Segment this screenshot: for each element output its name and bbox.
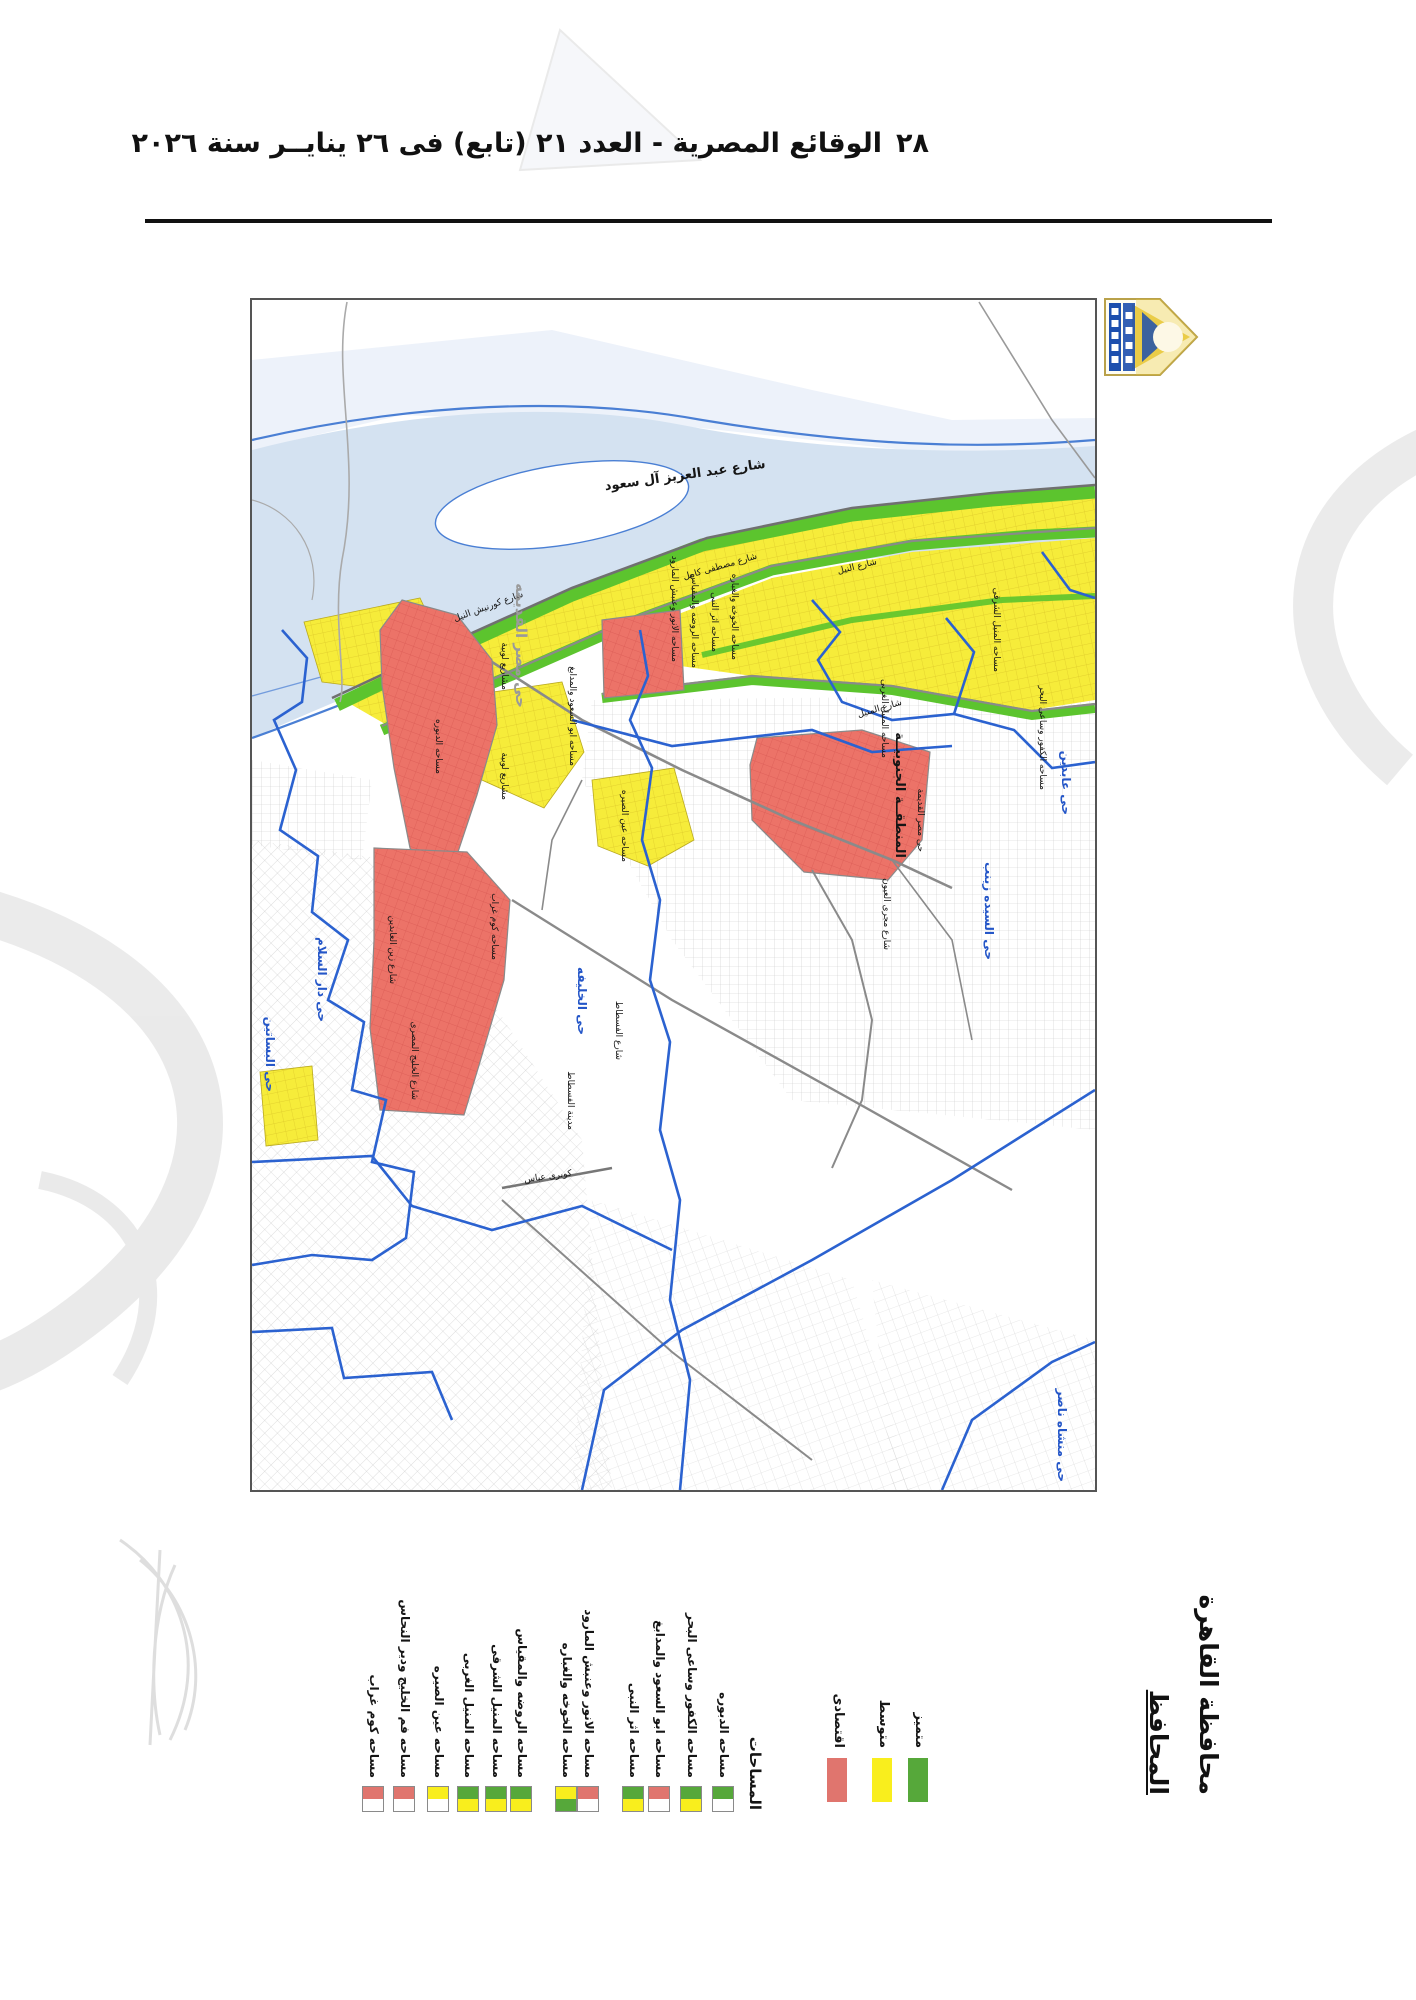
legend-category-premium-label: متميز	[911, 1638, 926, 1748]
area-label-manial-west: مساحه المنيل الغربى	[873, 558, 888, 758]
street-label-magra-eloyoun: شارع مجرى العيون	[875, 750, 890, 950]
legend-entry-label: مساحه عين الصيره	[430, 1528, 445, 1778]
legend-entry-swatch	[393, 1786, 415, 1812]
district-label-khalifa: حى الخليفه	[573, 835, 588, 1035]
legend-entry-swatch	[555, 1786, 577, 1812]
legend-category-economic-swatch	[827, 1758, 847, 1802]
legend-category-medium-swatch	[872, 1758, 892, 1802]
district-label-basatin: حى البساتين	[261, 892, 276, 1092]
area-label-dabbora: مساحه الدبوره	[427, 574, 442, 774]
legend-entry-label: مساحه المنيل الشرقى	[488, 1528, 503, 1778]
district-label-abdeen: حى عابدين	[1057, 615, 1072, 815]
city-map: شارع عبد العزيز آل سعود شارع النيل شارع …	[250, 298, 1097, 1492]
legend-entry-label: مساحه الكفور وساعى البحر	[683, 1528, 698, 1778]
district-label-misr-elqadima-gray: حى مصر القديمه	[513, 508, 528, 708]
legend-entry-swatch	[485, 1786, 507, 1812]
legend-entry-label: مساحه الخوخه والغباره	[558, 1528, 573, 1778]
legend-entry-label: مساحه الدبوره	[715, 1528, 730, 1778]
page-number: ٢٨	[896, 128, 929, 159]
gazette-page: { "page": { "number": "٢٨", "header": "ا…	[0, 0, 1416, 2000]
street-label-khalig-masry: شارع الخليج المصرى	[403, 900, 418, 1100]
legend-entry-label: مساحه الروضه والمقياس	[513, 1528, 528, 1778]
area-label-athar-elnabi: مساحه اثر النبى	[703, 452, 718, 652]
area-label-manial-east: مساحه المنيل الشرقى	[985, 472, 1000, 672]
legend-title: المساحات	[747, 1660, 762, 1810]
legend-entry-label: مساحه فم الخليج ودير النحاس	[396, 1528, 411, 1778]
district-label-manshiyet-nasser: حى منشاه ناصر	[1053, 1282, 1068, 1482]
street-label-zein-elabedin: شارع زين العابدين	[381, 784, 396, 984]
cairo-governorate-logo	[1102, 294, 1202, 380]
area-label-anwar-maroud: مساحه الانور وعنبش المارود	[663, 462, 678, 662]
legend-entry-swatch	[510, 1786, 532, 1812]
area-label-kofour-bahr: مساحه الكفور وساعى البحر	[1031, 590, 1046, 790]
street-label-fustat: شارع الفسطاط	[607, 860, 622, 1060]
legend-category-economic-label: اقتصادى	[830, 1638, 845, 1748]
legend-entry-swatch	[680, 1786, 702, 1812]
legend-entry-swatch	[712, 1786, 734, 1812]
district-label-misr-elqadima-small: حى مصر القديمة	[909, 652, 924, 852]
legend-entry-label: مساحه اثر النبى	[625, 1528, 640, 1778]
legend-entry-swatch	[427, 1786, 449, 1812]
legend-entry-label: مساحه المنيل الغربى	[460, 1528, 475, 1778]
area-label-rodah-meqyas: مساحه الروضه والمقياس	[683, 468, 698, 668]
area-label-abu-saoud-madabegh: مساحه ابو السعود والمدابغ	[561, 566, 576, 766]
legend-entry-swatch	[622, 1786, 644, 1812]
area-label-ain-elsira: مساحه عين الصيره	[613, 662, 628, 862]
area-label-khokha-ghabara: مساحه الخوخه والغباره	[723, 460, 738, 660]
signature-governorate: محافظة القاهرة	[1206, 1575, 1221, 1795]
logo-disc	[1153, 322, 1183, 352]
region-label-southern-zone: المنطقــة الجنوبيــة	[891, 658, 906, 858]
gazette-header-title: الوقائع المصرية - العدد ٢١ (تابع) فى ٢٦ …	[232, 128, 882, 159]
legend-entry-label: مساحه الانور وعنبش المارود	[580, 1528, 595, 1778]
legend-entry-swatch	[362, 1786, 384, 1812]
legend-category-premium-swatch	[908, 1758, 928, 1802]
signature-governor: المحافظ	[1156, 1665, 1171, 1795]
legend-category-medium-label: متوسط	[875, 1638, 890, 1748]
header-rule	[145, 219, 1272, 223]
district-label-sayeda-zeinab: حى السيده زينب	[980, 760, 995, 960]
area-label-fustat-city: مدينة الفسطاط	[559, 930, 574, 1130]
district-label-dar-elsalam: حى دار السلام	[313, 822, 328, 1022]
legend-entry-label: مساحه ابو السعود والمدابغ	[651, 1528, 666, 1778]
legend-entry-swatch	[457, 1786, 479, 1812]
legend-entry-label: مساحه كوم غراب	[365, 1528, 380, 1778]
legend-entry-swatch	[577, 1786, 599, 1812]
legend-entry-swatch	[648, 1786, 670, 1812]
area-label-projects-2: مشاريع لوبية	[493, 600, 508, 800]
